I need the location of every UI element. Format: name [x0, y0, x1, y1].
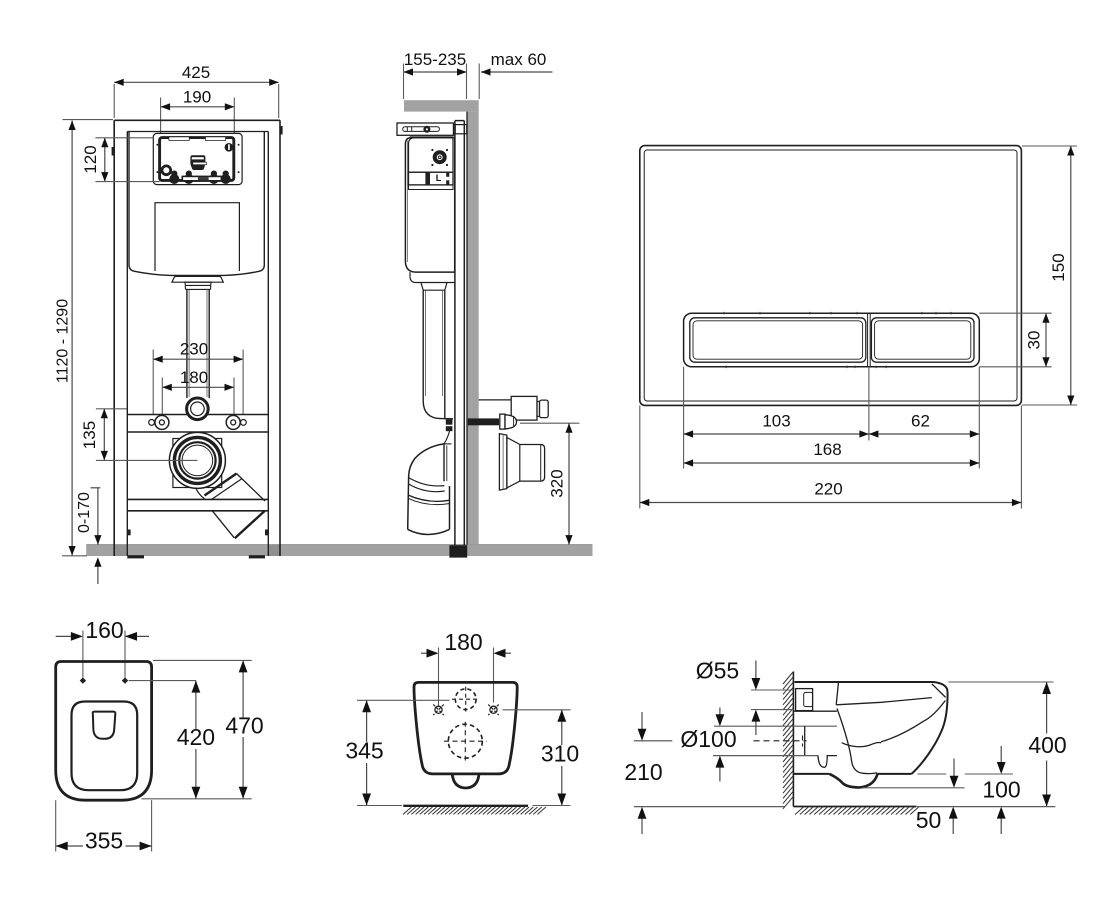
svg-text:180: 180 — [180, 368, 208, 387]
svg-text:210: 210 — [624, 759, 662, 785]
svg-text:355: 355 — [85, 828, 123, 854]
svg-text:1120 - 1290: 1120 - 1290 — [55, 299, 72, 383]
svg-text:420: 420 — [177, 724, 215, 750]
svg-text:310: 310 — [541, 741, 579, 767]
svg-text:180: 180 — [444, 629, 482, 655]
svg-text:400: 400 — [1028, 732, 1066, 758]
svg-text:345: 345 — [345, 738, 383, 764]
svg-text:100: 100 — [982, 777, 1020, 803]
svg-text:320: 320 — [547, 469, 566, 497]
svg-text:155-235: 155-235 — [404, 50, 466, 69]
svg-text:50: 50 — [916, 807, 942, 833]
svg-text:168: 168 — [813, 440, 841, 459]
svg-text:max 60: max 60 — [491, 50, 547, 69]
svg-text:135: 135 — [80, 421, 99, 449]
svg-text:220: 220 — [814, 479, 842, 498]
svg-text:190: 190 — [183, 87, 211, 106]
svg-text:L: L — [436, 173, 442, 183]
svg-text:103: 103 — [762, 411, 790, 430]
svg-text:470: 470 — [225, 713, 263, 739]
svg-text:120: 120 — [81, 145, 100, 173]
svg-text:Ø55: Ø55 — [696, 658, 739, 684]
svg-text:160: 160 — [85, 617, 123, 643]
svg-text:30: 30 — [1024, 331, 1043, 350]
svg-text:425: 425 — [182, 63, 210, 82]
svg-text:150: 150 — [1049, 253, 1068, 281]
svg-text:0-170: 0-170 — [76, 492, 93, 533]
svg-text:Ø100: Ø100 — [680, 726, 736, 752]
svg-text:62: 62 — [911, 411, 930, 430]
svg-text:230: 230 — [180, 339, 208, 358]
